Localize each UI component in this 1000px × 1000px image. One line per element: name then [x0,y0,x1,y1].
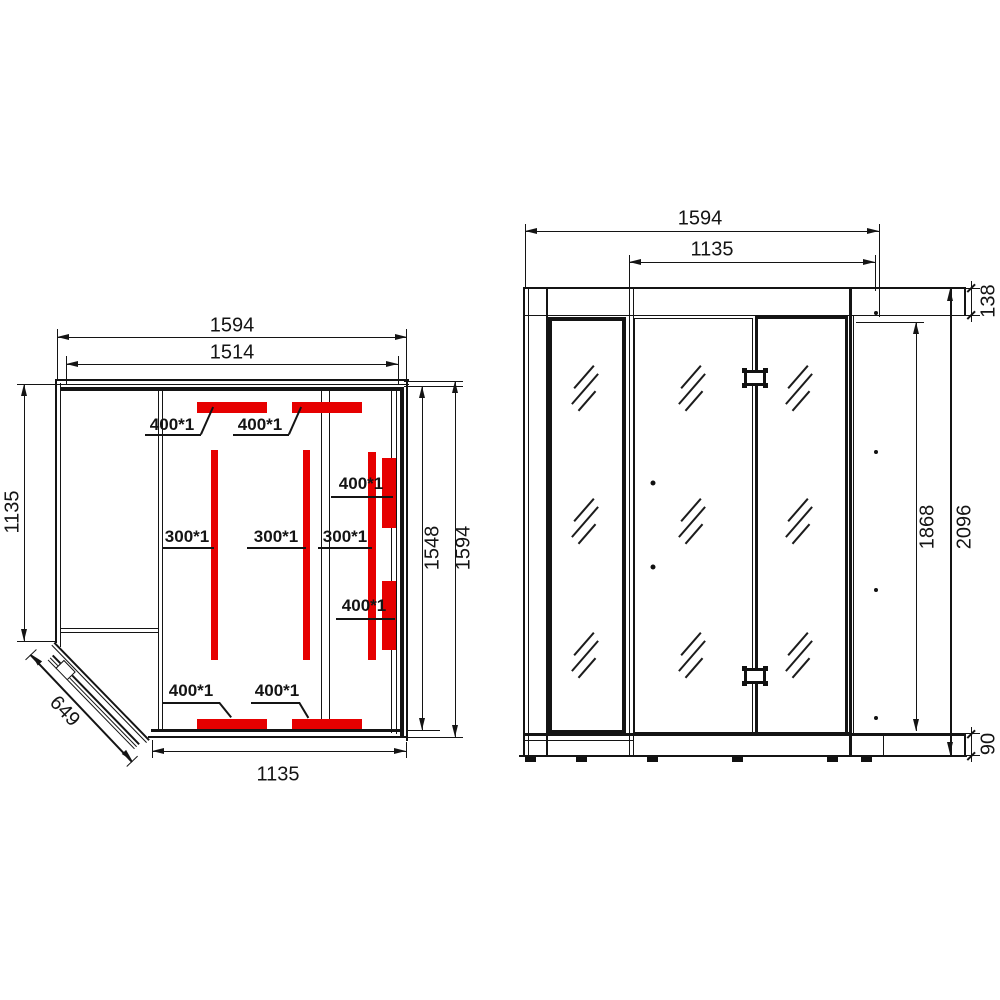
glass-joint-line [321,390,322,731]
side-panel-line [853,316,854,733]
plan-dim-right-inner: 1548 [422,526,445,571]
glass-hatch-icon [779,366,823,414]
bench-edge-line [61,628,158,629]
glass-joint-line [158,390,159,731]
heater-label-300-2: 300*1 [254,527,298,547]
door-handle-dot [651,481,656,486]
arrow-icon [394,748,406,754]
screw-dot [874,450,878,454]
elev-dim-line-1594 [525,231,879,232]
hinge-bolt [742,383,747,388]
leader-line [145,434,201,436]
wall-bottom-thick [151,729,404,732]
base-divider [883,733,884,755]
heater-bar-right-upper [382,458,396,528]
bench-edge-line [61,632,158,633]
hinge-bolt [742,681,747,686]
glass-joint-line [162,390,163,731]
extension-line [952,315,980,316]
arrow-icon [947,289,953,301]
heater-label-400-top-2: 400*1 [238,415,282,435]
hinge-bolt [742,368,747,373]
glass-hatch-icon [779,633,823,681]
left-edge-inner [528,287,529,757]
base-mid-line [524,740,634,741]
glass-hatch-icon [565,633,609,681]
glass-hatch-icon [565,366,609,414]
elev-dim-overall-width: 1594 [678,208,723,231]
right-cap-divider [950,288,952,757]
leader-line [299,702,310,718]
heater-bar-vertical-1 [211,450,218,660]
glass-joint-line [396,387,397,734]
elev-dim-crown-height: 138 [978,284,1000,317]
arrow-icon [525,228,537,234]
arrow-icon [21,629,27,641]
arrow-icon [152,748,164,754]
leader-line [162,547,214,549]
extension-line [406,742,407,758]
glass-hatch-icon [672,499,716,547]
right-edge-crown [964,287,966,316]
arrow-icon [419,718,425,730]
leveling-foot [732,757,743,762]
arrow-icon [913,322,919,334]
heater-label-300-1: 300*1 [165,527,209,547]
glass-joint-line [391,390,392,733]
wall-top-inner [55,384,409,385]
extension-line [952,288,980,289]
arrow-icon [629,259,641,265]
heater-label-400-bottom-2: 400*1 [255,681,299,701]
arrow-icon [386,361,398,367]
leader-line [318,547,372,549]
glass-hatch-icon [565,499,609,547]
extension-line [406,329,407,381]
base-divider [528,733,529,755]
heater-bar-top-1 [197,402,267,413]
door-handle-dot [651,565,656,570]
hinge-bolt [763,383,768,388]
crown-top-line [524,287,966,289]
wall-bottom-outer [148,736,408,739]
arrow-icon [452,725,458,737]
leader-line [251,702,300,704]
crown-bottom-line [524,315,966,317]
arrow-icon [419,386,425,398]
glass-hatch-icon [779,499,823,547]
heater-label-400-top-1: 400*1 [150,415,194,435]
wall-left-inner [60,383,61,647]
plan-dim-door-width: 649 [44,692,84,732]
glass-hatch-icon [672,633,716,681]
heater-label-300-3: 300*1 [323,527,367,547]
leader-line [331,496,393,498]
leveling-foot [861,757,872,762]
heater-label-400-bottom-1: 400*1 [169,681,213,701]
wall-top-thick [60,387,404,391]
right-edge-base [964,733,966,757]
leveling-foot [647,757,658,762]
heater-bar-vertical-2 [303,450,310,660]
plan-dim-bottom-width: 1135 [256,764,299,787]
arrow-icon [913,719,919,731]
elev-dim-glass-height: 1868 [917,505,940,550]
arrow-icon [452,381,458,393]
base-top-line [524,733,966,736]
arrow-icon [21,384,27,396]
extension-line [952,733,980,734]
screw-dot [874,588,878,592]
sauna-technical-drawing: 1594 1514 [0,0,1000,1000]
plan-dim-top-inner: 1514 [210,342,255,365]
extension-line [407,730,440,731]
leader-line [163,702,220,704]
arrow-icon [863,259,875,265]
glass-hatch-icon [672,366,716,414]
extension-line [525,224,526,288]
heater-bar-top-2 [292,402,362,413]
hinge-bolt [763,666,768,671]
extension-line [952,755,980,756]
wall-right-outer [406,379,408,741]
wall-top-outer [55,379,409,381]
extension-line [879,224,880,317]
elev-dim-base-height: 90 [978,733,1000,755]
plan-dim-left-depth: 1135 [2,490,25,533]
plan-dim-right-outer: 1594 [453,526,476,571]
arrow-icon [66,361,78,367]
leader-line [233,434,289,436]
extension-line [875,255,876,291]
elev-dim-line-1135 [629,262,875,263]
hinge-bolt [763,681,768,686]
extension-line [57,329,58,381]
screw-dot [874,716,878,720]
glass-joint-line [329,390,330,731]
arrow-icon [57,334,69,340]
leader-line [247,547,306,549]
panel-divider [629,288,630,757]
hinge-bolt [763,368,768,373]
leader-line [219,702,232,718]
wall-right-thick [400,387,404,737]
wall-left-outer [55,379,57,643]
arrow-icon [947,742,953,754]
leveling-foot [576,757,587,762]
leveling-foot [525,757,536,762]
extension-line [629,255,630,289]
leveling-foot [827,757,838,762]
extension-line [407,737,463,738]
left-edge-outer [523,287,525,757]
extension-line [17,641,57,642]
hinge-bolt [742,666,747,671]
plan-dim-line-bottom-1135 [152,751,406,752]
door-right-edge [849,288,852,757]
leader-line [336,618,395,620]
heater-label-400-right-lower: 400*1 [342,596,386,616]
elev-dim-front-width: 1135 [690,239,733,262]
elev-dim-overall-height: 2096 [954,505,977,550]
arrow-icon [867,228,879,234]
screw-dot [874,311,878,315]
plan-dim-top-outer: 1594 [210,315,255,338]
heater-label-400-right-upper: 400*1 [339,474,383,494]
